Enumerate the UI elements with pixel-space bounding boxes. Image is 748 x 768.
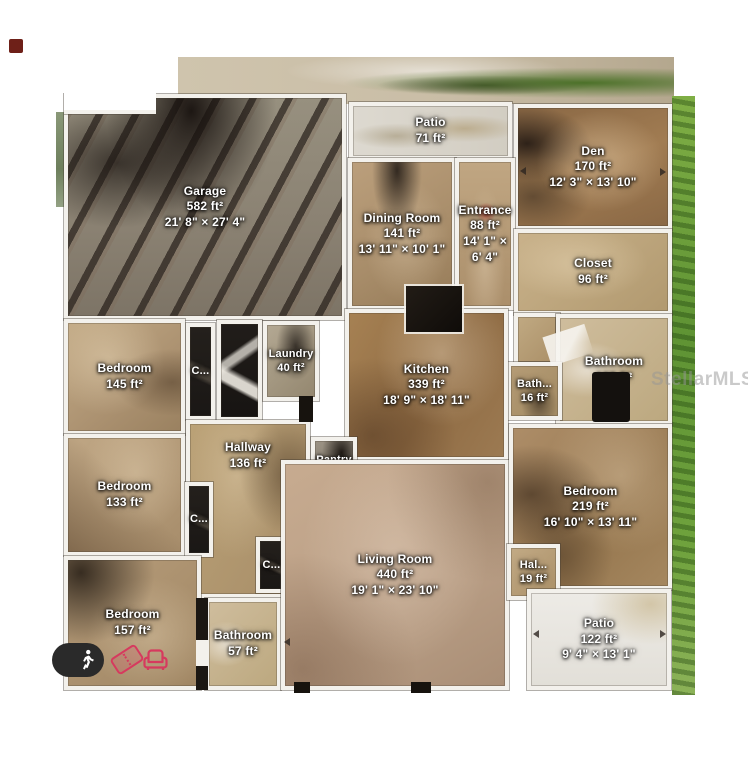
garage-wall-notch [64,92,156,114]
measure-arrow-left-icon [533,630,539,638]
room-area: 170 ft² [549,159,636,175]
armchair-icon[interactable] [142,647,169,673]
room-garage: Garage 582 ft² 21' 8" × 27' 4" [64,94,346,320]
room-patio-top: Patio 71 ft² [349,102,512,160]
room-laundry: Laundry 40 ft² [263,321,319,401]
room-closet-2: C... [185,482,213,557]
room-label: Entrance 88 ft² 14' 1" × 6' 4" [459,203,512,265]
room-name: Garage [165,184,245,200]
room-label: Hal... 19 ft² [520,558,548,587]
measure-arrow-left-icon [520,167,526,175]
room-area: 440 ft² [351,567,438,583]
room-name: C... [192,364,210,378]
room-label: Bedroom 219 ft² 16' 10" × 13' 11" [544,484,638,531]
room-label: Kitchen 339 ft² 18' 9" × 18' 11" [383,362,470,409]
room-name: Closet [574,256,612,272]
room-label: Den 170 ft² 12' 3" × 13' 10" [549,144,636,191]
room-name: Den [549,144,636,160]
room-label: Bathroom 57 ft² [214,628,272,659]
room-bedroom-133: Bedroom 133 ft² [64,434,185,556]
wall-shadow [299,396,313,422]
room-dims: 16' 10" × 13' 11" [544,515,638,531]
room-name: Hal... [520,558,548,572]
room-label: Laundry 40 ft² [269,347,314,376]
room-name: Living Room [351,552,438,568]
room-dims: 21' 8" × 27' 4" [165,215,245,231]
dark-wall-segment [411,682,431,693]
measure-arrow-right-icon [660,168,666,176]
room-label: Hallway 136 ft² [225,440,271,471]
bathroom-fixture [592,372,630,422]
room-label: Closet 96 ft² [574,256,612,287]
dark-wall [196,598,208,690]
room-label: Dining Room 141 ft² 13' 11" × 10' 1" [359,211,446,258]
room-area: 145 ft² [97,377,151,393]
room-label: Patio 122 ft² 9' 4" × 13' 1" [562,616,636,663]
room-dims: 18' 9" × 18' 11" [383,393,470,409]
room-dims: 14' 1" × 6' 4" [459,234,512,265]
room-label: Living Room 440 ft² 19' 1" × 23' 10" [351,552,438,599]
room-name: Entrance [459,203,512,219]
room-name: Bedroom [97,361,151,377]
room-dims: 19' 1" × 23' 10" [351,583,438,599]
room-closet-1: C... [186,323,215,420]
room-label: Bedroom 145 ft² [97,361,151,392]
measure-arrow-left-icon [284,638,290,646]
room-area: 96 ft² [574,272,612,288]
room-entrance: Entrance 88 ft² 14' 1" × 6' 4" [455,158,515,310]
room-name: C... [190,512,208,526]
watermark: StellarMLS [651,369,748,391]
room-area: 19 ft² [520,572,548,586]
room-name: Bathroom [214,628,272,644]
room-patio-bottom: Patio 122 ft² 9' 4" × 13' 1" [527,589,671,690]
room-label: C... [190,512,208,526]
room-area: 16 ft² [517,391,552,405]
door-opening [196,640,208,666]
closet-open [217,320,262,421]
room-area: 582 ft² [165,199,245,215]
measure-arrow-right-icon [660,630,666,638]
room-dims: 9' 4" × 13' 1" [562,647,636,663]
room-bath-small: Bath... 16 ft² [507,362,562,420]
room-name: Dining Room [359,211,446,227]
room-name: Bedroom [105,607,159,623]
room-name: Patio [562,616,636,632]
room-living: Living Room 440 ft² 19' 1" × 23' 10" [281,460,509,690]
room-area: 57 ft² [214,644,272,660]
walking-person-icon [77,648,97,672]
room-area: 219 ft² [544,499,638,515]
dark-wall-segment [294,682,310,693]
room-bathroom-57: Bathroom 57 ft² [205,598,281,690]
room-bedroom-145: Bedroom 145 ft² [64,319,185,435]
room-name: Bedroom [544,484,638,500]
room-name: Bedroom [97,479,151,495]
room-name: C... [263,558,281,572]
room-label: Bedroom 133 ft² [97,479,151,510]
room-area: 133 ft² [97,495,151,511]
room-label: Bath... 16 ft² [517,377,552,406]
room-dims: 12' 3" × 13' 10" [549,175,636,191]
room-den: Den 170 ft² 12' 3" × 13' 10" [514,104,672,230]
room-area: 122 ft² [562,632,636,648]
room-area: 40 ft² [269,361,314,375]
room-name: Patio [415,115,445,131]
room-area: 88 ft² [459,218,512,234]
room-label: C... [263,558,281,572]
walkthrough-toggle-button[interactable] [52,643,104,677]
room-name: Bathroom [585,354,643,370]
room-area: 71 ft² [415,131,445,147]
room-label: Garage 582 ft² 21' 8" × 27' 4" [165,184,245,231]
room-label: Patio 71 ft² [415,115,445,146]
room-label: Bedroom 157 ft² [105,607,159,638]
room-closet-right: Closet 96 ft² [514,229,672,315]
room-area: 339 ft² [383,377,470,393]
room-name: Hallway [225,440,271,456]
crop-artifact [9,39,23,53]
grass-strip [672,96,695,695]
room-name: Bath... [517,377,552,391]
room-name: Laundry [269,347,314,361]
room-label: C... [192,364,210,378]
room-dims: 13' 11" × 10' 1" [359,242,446,258]
room-area: 157 ft² [105,623,159,639]
room-area: 141 ft² [359,226,446,242]
kitchen-island [406,286,462,332]
room-area: 136 ft² [225,456,271,472]
room-name: Kitchen [383,362,470,378]
